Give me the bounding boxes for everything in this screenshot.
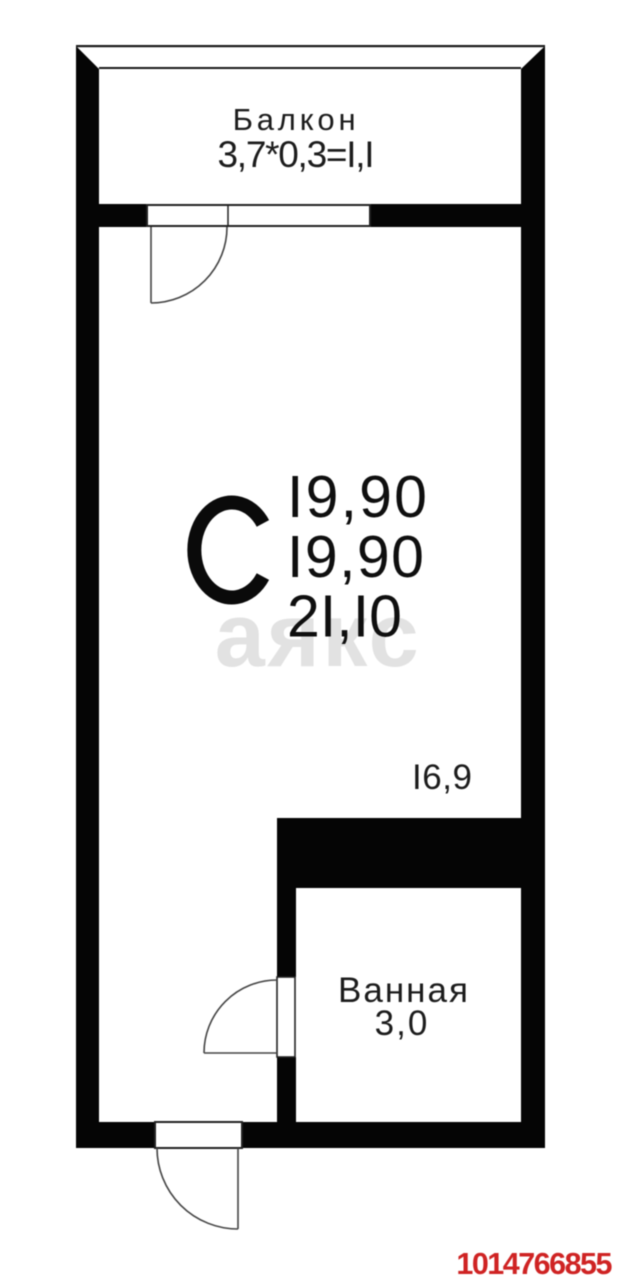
svg-text:2I,I0: 2I,I0 <box>287 584 402 650</box>
svg-text:3,0: 3,0 <box>375 1004 430 1043</box>
svg-text:1014766855: 1014766855 <box>456 1247 612 1280</box>
svg-text:Балкон: Балкон <box>233 102 360 137</box>
svg-text:3,7*0,3=I,I: 3,7*0,3=I,I <box>218 134 375 175</box>
svg-text:I6,9: I6,9 <box>412 758 472 797</box>
